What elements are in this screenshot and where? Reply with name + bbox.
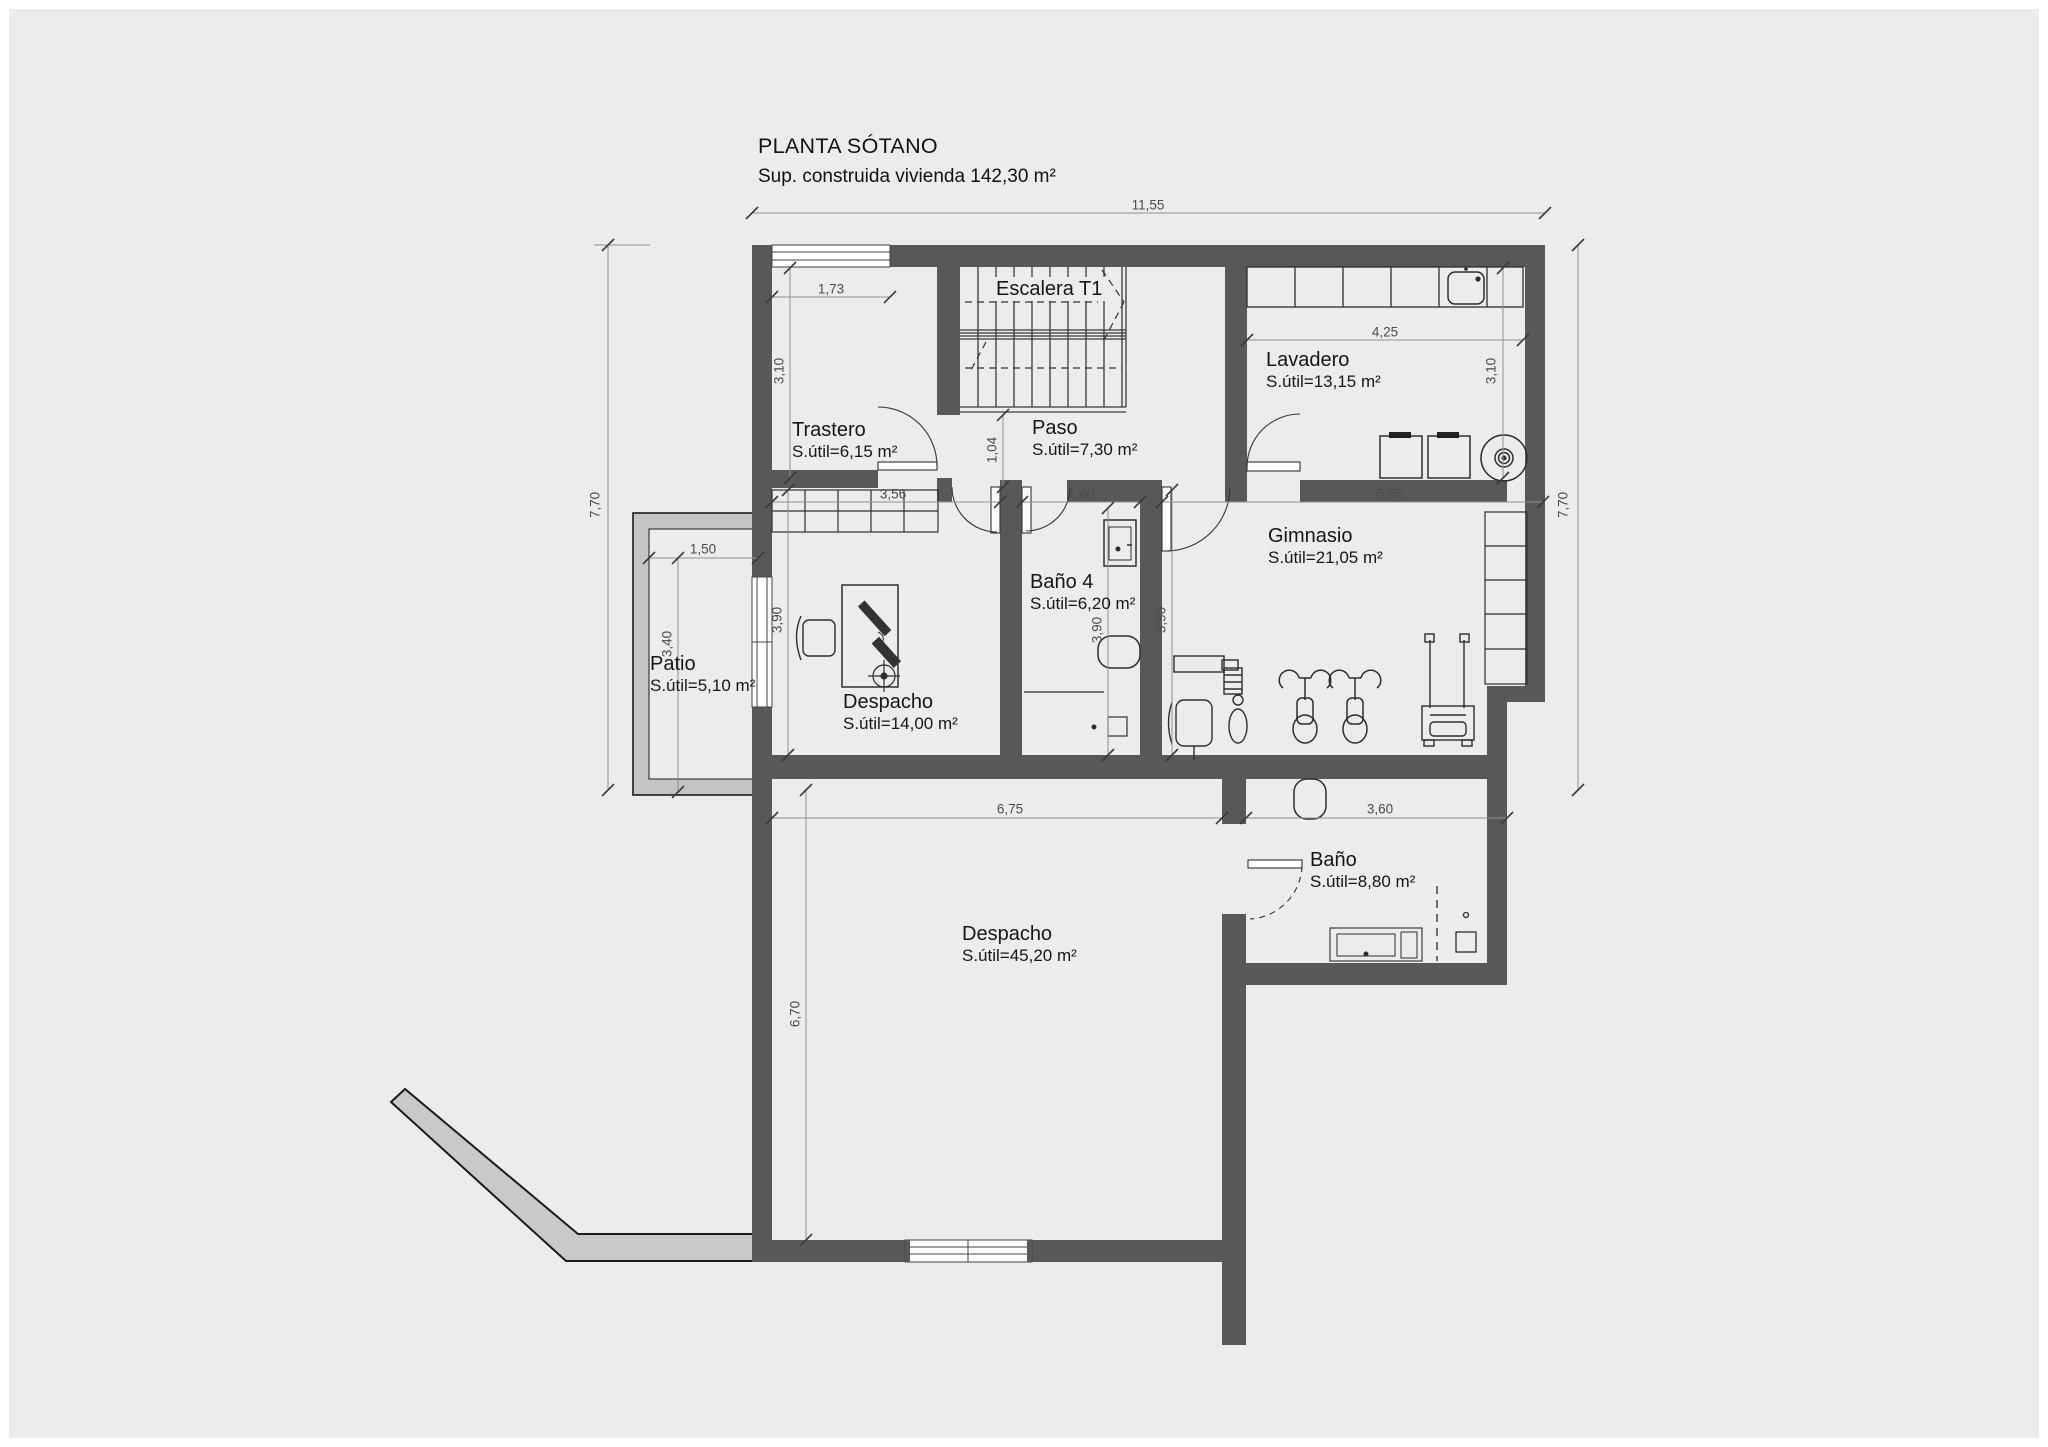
- dim-overall-height-right: 7,70: [1556, 492, 1571, 518]
- door-bano: [1248, 860, 1302, 919]
- despacho-closet: [772, 490, 938, 532]
- door-despacho1: [952, 487, 1000, 533]
- boiler-icon: [1481, 435, 1527, 481]
- room-label-patio: Patio S.útil=5,10 m²: [650, 652, 755, 697]
- dim-trastero-height: 3,10: [772, 358, 787, 384]
- gym-bench-icon: [1422, 634, 1474, 746]
- window-despacho-bottom: [905, 1240, 1032, 1262]
- dim-overall-width: 11,55: [1132, 198, 1165, 213]
- office-chair-icon: [797, 616, 836, 660]
- floor-plan-page: PLANTA SÓTANO Sup. construida vivienda 1…: [0, 0, 2048, 1447]
- dim-bano-width: 3,60: [1367, 802, 1393, 817]
- room-label-escalera: Escalera T1: [993, 277, 1105, 301]
- room-label-gimnasio: Gimnasio S.útil=21,05 m²: [1268, 524, 1383, 569]
- desk-icon: [842, 585, 898, 687]
- plan-title-name: PLANTA SÓTANO: [758, 134, 1056, 159]
- gym-shelf: [1485, 512, 1527, 684]
- gym-bike-icon: [1329, 670, 1381, 743]
- room-label-bano: Baño S.útil=8,80 m²: [1310, 848, 1415, 893]
- dim-lavadero-height: 3,10: [1484, 358, 1499, 384]
- dim-overall-height-left: 7,70: [588, 492, 603, 518]
- room-label-paso: Paso S.útil=7,30 m²: [1032, 416, 1137, 461]
- bano-toilet-icon: [1294, 779, 1326, 819]
- dim-gimnasio-width: 5,55: [1377, 487, 1403, 502]
- shower-drain-icon: [1456, 913, 1476, 953]
- room-label-trastero: Trastero S.útil=6,15 m²: [792, 418, 897, 463]
- bathtub-icon: [1330, 928, 1422, 961]
- ramp: [391, 1089, 753, 1261]
- dim-trastero-window: 1,73: [818, 282, 844, 297]
- lavadero-sink-icon: [1448, 267, 1484, 304]
- door-bano4: [1022, 487, 1070, 533]
- room-label-lavadero: Lavadero S.útil=13,15 m²: [1266, 348, 1381, 393]
- gym-multigym-icon: [1169, 656, 1248, 760]
- dim-bano4-height: 3,90: [1090, 617, 1105, 643]
- bano4-sink-icon: [1104, 520, 1136, 566]
- dim-gimnasio-height: 3,90: [1154, 607, 1169, 633]
- dim-despacho2-width: 6,75: [997, 802, 1023, 817]
- plan-title-surface: Sup. construida vivienda 142,30 m²: [758, 166, 1056, 188]
- washing-machine-icon: [1380, 432, 1470, 478]
- room-label-bano4: Baño 4 S.útil=6,20 m²: [1030, 570, 1135, 615]
- dim-patio-width: 1,50: [690, 542, 716, 557]
- monitor-keyboard-icon: [858, 600, 901, 668]
- room-label-despacho2: Despacho S.útil=45,20 m²: [962, 922, 1077, 967]
- dim-despacho1-width: 3,56: [880, 487, 906, 502]
- dim-despacho2-height: 6,70: [788, 1001, 803, 1027]
- bano4-shower: [1024, 692, 1127, 736]
- gym-bike-icon: [1279, 670, 1331, 743]
- door-lavadero: [1247, 414, 1300, 471]
- floor-plan-drawing: [0, 0, 2048, 1447]
- dim-despacho1-height: 3,90: [770, 607, 785, 633]
- walls: [752, 245, 1545, 1345]
- room-label-despacho1: Despacho S.útil=14,00 m²: [843, 690, 958, 735]
- dim-bano4-width: 1,60: [1068, 487, 1094, 502]
- window-trastero-top: [772, 245, 890, 267]
- dim-lavadero-width: 4,25: [1372, 325, 1398, 340]
- dim-paso-height: 1,04: [985, 437, 1000, 463]
- plan-title: PLANTA SÓTANO Sup. construida vivienda 1…: [758, 134, 1056, 188]
